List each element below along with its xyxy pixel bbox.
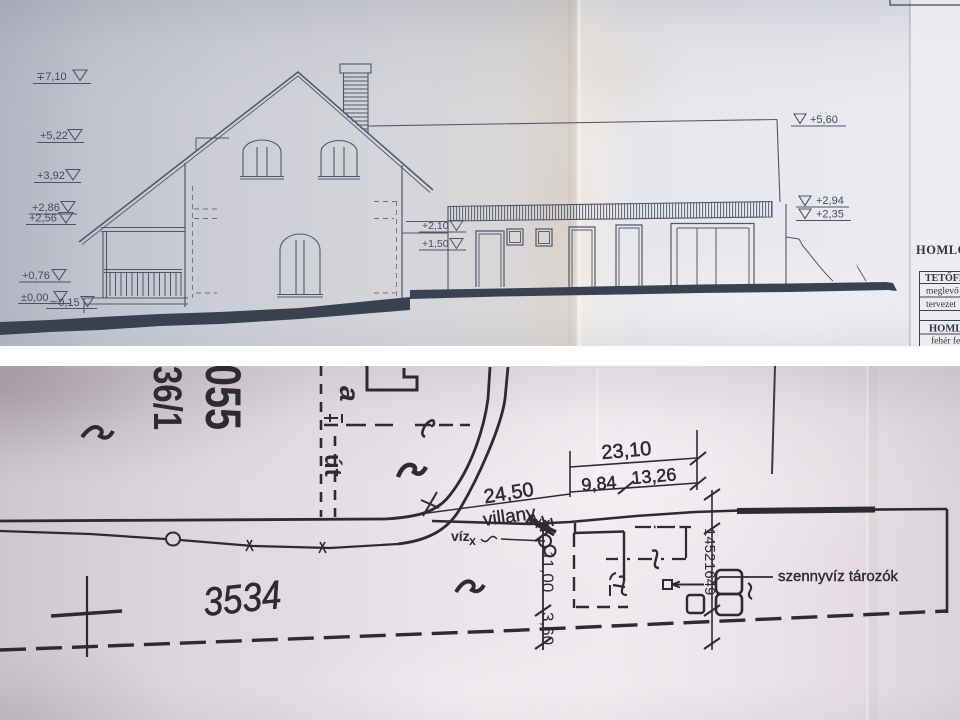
svg-text:víz: víz — [451, 528, 470, 544]
svg-text:11,00: 11,00 — [538, 551, 557, 592]
svg-text:≃0,15: ≃0,15 — [49, 297, 80, 309]
svg-text:út: út — [319, 454, 346, 477]
svg-text:1649: 1649 — [701, 562, 718, 595]
svg-text:23,10: 23,10 — [601, 438, 653, 464]
svg-text:∓7,10: ∓7,10 — [36, 71, 67, 83]
svg-text:a: a — [334, 386, 365, 402]
svg-text:+2,94: +2,94 — [816, 195, 844, 207]
svg-text:fehér fe: fehér fe — [931, 336, 960, 347]
svg-text:+1,50: +1,50 — [422, 238, 449, 250]
svg-text:+2,35: +2,35 — [816, 209, 844, 221]
svg-text:tervezet: tervezet — [926, 300, 956, 310]
svg-text:+0,76: +0,76 — [22, 270, 50, 282]
svg-text:9,84: 9,84 — [581, 472, 618, 495]
svg-text:+5,22: +5,22 — [40, 130, 68, 142]
svg-text:meglevő: meglevő — [926, 287, 959, 297]
svg-text:szennyvíz tározók: szennyvíz tározók — [778, 568, 899, 585]
svg-text:HOMLOK: HOMLOK — [916, 243, 960, 257]
svg-text:+2,56: +2,56 — [29, 213, 57, 225]
svg-text:+3,92: +3,92 — [37, 170, 65, 182]
svg-text:+5,60: +5,60 — [810, 114, 838, 126]
svg-text:3534: 3534 — [201, 573, 283, 625]
svg-text:TETŐFE: TETŐFE — [925, 272, 960, 284]
svg-text:1452: 1452 — [701, 528, 718, 561]
svg-text:055: 055 — [195, 366, 251, 430]
svg-text:±0,00: ±0,00 — [21, 292, 48, 304]
svg-text:13,26: 13,26 — [631, 464, 678, 488]
svg-text:HOML: HOML — [929, 324, 960, 335]
svg-text:36/1: 36/1 — [145, 366, 189, 430]
